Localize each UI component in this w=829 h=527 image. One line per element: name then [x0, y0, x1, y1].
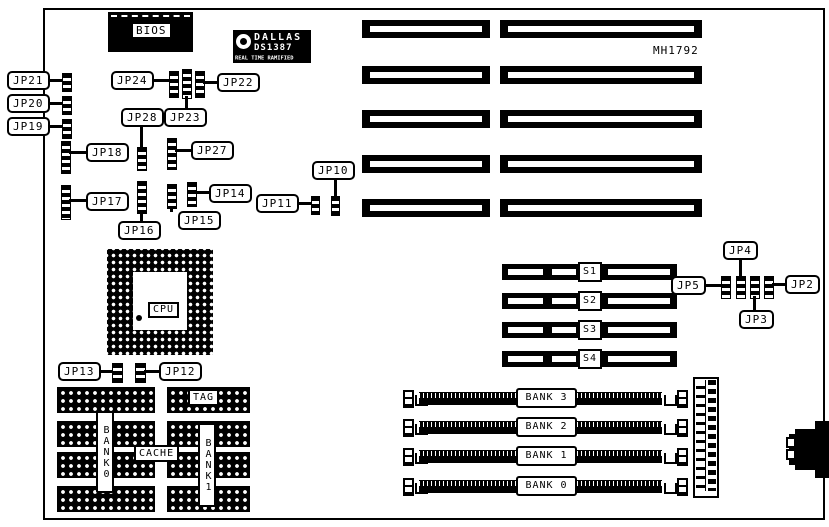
jumper-label-jp23: JP23: [164, 108, 207, 127]
simm-end-cap: [403, 419, 414, 437]
jumper-label-jp19: JP19: [7, 117, 50, 136]
keyboard-connector-pin: [786, 437, 796, 448]
callout-tail-jp22: [203, 81, 218, 84]
sipp-slot-s2: S2: [502, 293, 677, 309]
pin1-marker-dot: [136, 315, 142, 321]
jumper-label-jp15: JP15: [178, 211, 221, 230]
expansion-slot: [500, 155, 702, 173]
jumper-label-jp14: JP14: [209, 184, 252, 203]
model-number: MH1792: [653, 44, 699, 57]
simm-bank-label: BANK 1: [516, 446, 577, 466]
connector-housing: [696, 380, 706, 491]
slot-opening: [552, 327, 576, 333]
jumper-block-jp23: [182, 69, 192, 99]
expansion-slot: [362, 155, 490, 173]
jumper-block-jp11: [311, 196, 320, 215]
keyboard-connector-body: [815, 421, 829, 478]
simm-end-cap: [403, 390, 414, 408]
simm-contacts: [573, 421, 662, 434]
callout-tail-jp14: [195, 191, 210, 194]
jumper-block-jp13: [112, 363, 123, 383]
slot-opening: [608, 327, 670, 333]
sipp-slot-label: S1: [578, 262, 602, 282]
jumper-block-jp20: [62, 96, 72, 115]
simm-contacts: [573, 480, 662, 493]
expansion-slot: [362, 66, 490, 84]
cpu-socket-inner: [133, 272, 187, 330]
jumper-label-jp22: JP22: [217, 73, 260, 92]
bios-socket-notch: [111, 15, 190, 17]
jumper-label-jp16: JP16: [118, 221, 161, 240]
jumper-block-jp18: [61, 141, 71, 174]
simm-latch: [664, 395, 677, 406]
simm-end-cap: [677, 478, 688, 496]
expansion-slot: [362, 110, 490, 128]
callout-tail-jp12: [144, 370, 160, 373]
slot-opening: [608, 298, 670, 304]
slot-opening: [552, 298, 576, 304]
expansion-slot: [362, 20, 490, 38]
callout-tail-jp28: [140, 125, 143, 148]
jumper-label-jp11: JP11: [256, 194, 299, 213]
jumper-label-jp17: JP17: [86, 192, 129, 211]
sipp-slot-label: S2: [578, 291, 602, 311]
cache-label: CACHE: [134, 445, 179, 462]
jumper-label-jp27: JP27: [191, 141, 234, 160]
keyboard-connector-body: [795, 429, 817, 470]
slot-opening: [552, 269, 576, 275]
tag-ram-label: TAG: [188, 389, 219, 406]
bios-label: BIOS: [132, 23, 171, 38]
simm-end-cap: [677, 419, 688, 437]
sipp-slot-label: S4: [578, 349, 602, 369]
simm-bank-label: BANK 3: [516, 388, 577, 408]
dallas-subtitle: REAL TIME RAMIFIED: [235, 55, 294, 61]
callout-tail-jp15: [170, 206, 173, 212]
simm-bank-label: BANK 0: [516, 476, 577, 496]
simm-contacts: [573, 392, 662, 405]
sipp-slot-s4: S4: [502, 351, 677, 367]
simm-latch: [664, 453, 677, 464]
jumper-block-jp16: [137, 181, 147, 214]
dallas-brand: DALLAS: [254, 32, 302, 43]
simm-contacts: [419, 450, 516, 463]
jumper-label-jp12: JP12: [159, 362, 202, 381]
callout-tail-jp2: [772, 283, 786, 286]
jumper-block-jp5: [721, 276, 731, 299]
dallas-rtc-chip: DALLAS DS1387 REAL TIME RAMIFIED: [233, 30, 311, 63]
jumper-block-jp12: [135, 363, 146, 383]
slot-opening: [608, 356, 670, 362]
cpu-label: CPU: [148, 302, 179, 318]
dallas-clock-logo-icon: [236, 34, 251, 49]
slot-opening: [508, 298, 543, 304]
jumper-label-jp10: JP10: [312, 161, 355, 180]
bios-chip: BIOS: [108, 12, 193, 52]
callout-tail-jp18: [69, 151, 87, 154]
expansion-slot: [500, 20, 702, 38]
simm-slot-bank0: BANK 0: [403, 476, 688, 496]
simm-latch: [664, 424, 677, 435]
simm-end-cap: [677, 390, 688, 408]
jumper-block-jp14: [187, 182, 197, 207]
simm-end-cap: [403, 448, 414, 466]
slot-opening: [608, 269, 670, 275]
jumper-label-jp3: JP3: [739, 310, 774, 329]
jumper-block-jp19: [62, 119, 72, 139]
simm-contacts: [419, 480, 516, 493]
sipp-slot-s1: S1: [502, 264, 677, 280]
cache-chip: [57, 387, 155, 413]
jumper-label-jp13: JP13: [58, 362, 101, 381]
jumper-label-jp20: JP20: [7, 94, 50, 113]
dallas-part-number: DS1387: [254, 43, 293, 53]
jumper-label-jp4: JP4: [723, 241, 758, 260]
sipp-slot-label: S3: [578, 320, 602, 340]
jumper-block-jp2: [764, 276, 774, 299]
simm-contacts: [573, 450, 662, 463]
simm-contacts: [419, 392, 516, 405]
jumper-label-jp21: JP21: [7, 71, 50, 90]
simm-slot-bank2: BANK 2: [403, 417, 688, 437]
cache-bank1-label: BANK1: [198, 423, 216, 507]
motherboard-diagram: BIOS DALLAS DS1387 REAL TIME RAMIFIED MH…: [0, 0, 829, 527]
jumper-block-jp10: [331, 196, 340, 216]
simm-slot-bank3: BANK 3: [403, 388, 688, 408]
slot-opening: [508, 327, 543, 333]
slot-opening: [508, 269, 543, 275]
callout-tail-jp17: [69, 199, 87, 202]
jumper-block-jp27: [167, 138, 177, 170]
power-connector: [693, 377, 719, 498]
cpu-socket: CPU: [107, 249, 213, 355]
callout-tail-jp10: [334, 178, 337, 197]
simm-end-cap: [677, 448, 688, 466]
jumper-block-jp24: [169, 71, 179, 98]
callout-tail-jp27: [175, 149, 192, 152]
slot-opening: [552, 356, 576, 362]
expansion-slot: [500, 199, 702, 217]
connector-pins: [708, 380, 716, 491]
jumper-block-jp4: [736, 276, 746, 299]
jumper-label-jp5: JP5: [671, 276, 706, 295]
callout-tail-jp4: [739, 258, 742, 277]
simm-latch: [664, 483, 677, 494]
sipp-slot-s3: S3: [502, 322, 677, 338]
jumper-block-jp28: [137, 147, 147, 171]
expansion-slot: [500, 110, 702, 128]
jumper-label-jp18: JP18: [86, 143, 129, 162]
jumper-label-jp2: JP2: [785, 275, 820, 294]
simm-end-cap: [403, 478, 414, 496]
callout-tail-jp3: [753, 296, 756, 311]
slot-opening: [508, 356, 543, 362]
cache-bank0-label: BANK0: [96, 411, 114, 493]
expansion-slot: [500, 66, 702, 84]
keyboard-connector-pin: [786, 449, 796, 460]
simm-bank-label: BANK 2: [516, 417, 577, 437]
expansion-slot: [362, 199, 490, 217]
jumper-block-jp21: [62, 73, 72, 92]
simm-contacts: [419, 421, 516, 434]
simm-slot-bank1: BANK 1: [403, 446, 688, 466]
jumper-label-jp28: JP28: [121, 108, 164, 127]
jumper-block-jp22: [195, 71, 205, 98]
jumper-block-jp17: [61, 185, 71, 220]
jumper-label-jp24: JP24: [111, 71, 154, 90]
